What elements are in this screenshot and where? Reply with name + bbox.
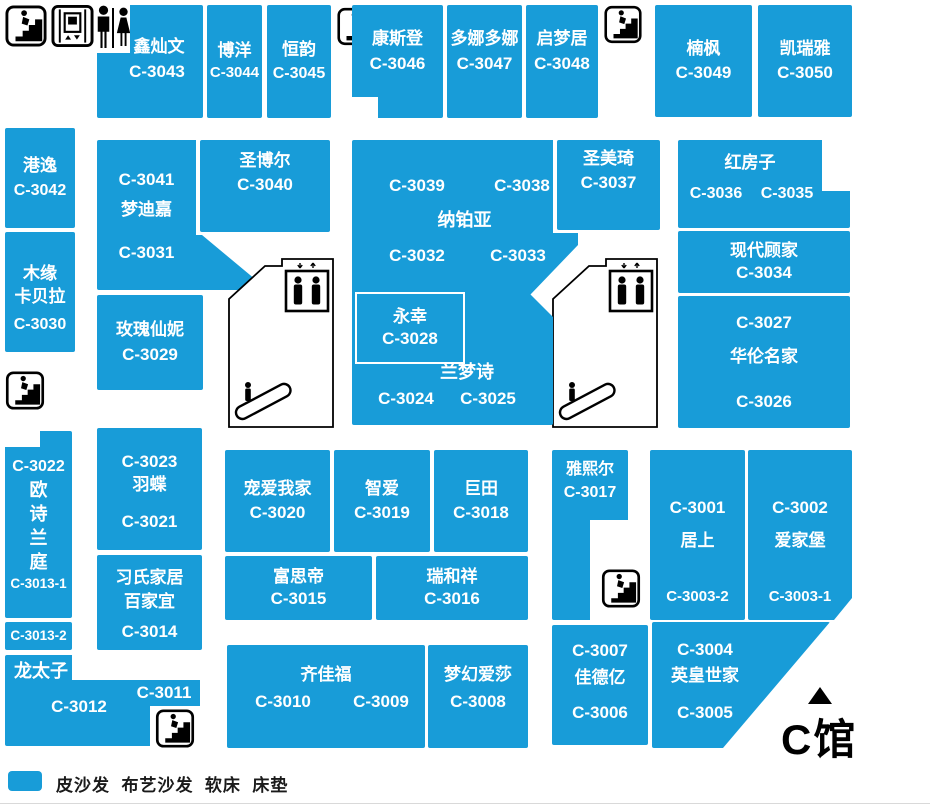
store-code: C-3024 <box>360 389 452 409</box>
store-name: 恒韵 <box>282 40 316 60</box>
stairs-icon <box>604 4 642 45</box>
store-code: C-3044 <box>210 64 259 82</box>
store-code: C-3006 <box>552 703 648 723</box>
store-block-c3027-c3026: C-3027 华伦名家 C-3026 <box>678 296 850 428</box>
store-code: C-3035 <box>755 184 819 203</box>
store-block-c3007-c3006: C-3007 佳德亿 C-3006 <box>552 625 648 745</box>
store-name: 兰 <box>30 526 48 550</box>
store-name: 欧 <box>30 478 48 502</box>
store-block-c3023-c3021: C-3023 羽蝶 C-3021 <box>97 428 202 550</box>
store-name: 兰梦诗 <box>412 362 522 384</box>
store-block-c3008: 梦幻爱莎 C-3008 <box>428 645 528 748</box>
stairs-icon <box>5 371 45 410</box>
store-block-c3016: 瑞和祥 C-3016 <box>376 556 528 620</box>
store-block-qijiafu: 齐佳福 C-3010 C-3009 <box>227 645 425 748</box>
store-block-c3045: 恒韵 C-3045 <box>267 5 331 118</box>
store-block-c3015: 富思帝 C-3015 <box>225 556 372 620</box>
store-name: 华伦名家 <box>678 347 850 367</box>
store-code: C-3045 <box>273 64 325 83</box>
stairs-icon <box>5 4 47 48</box>
store-block-c3047: 多娜多娜 C-3047 <box>447 5 522 118</box>
store-block-c3046: 康斯登 C-3046 <box>352 5 443 118</box>
store-name: 居上 <box>650 531 745 551</box>
elevator-cab-icon <box>610 263 652 311</box>
store-name: 木缘 <box>23 264 57 284</box>
store-name: 英皇世家 <box>656 666 754 686</box>
store-code: C-3047 <box>457 54 513 74</box>
elevator-cab-icon <box>286 263 328 311</box>
store-code: C-3050 <box>777 63 833 83</box>
store-code: C-3049 <box>676 63 732 83</box>
store-code: C-3001 <box>650 498 745 518</box>
store-block-c3013-2: C-3013-2 <box>5 622 72 650</box>
store-name: 习氏家居 <box>97 568 202 588</box>
store-block-c3019: 智爱 C-3019 <box>334 450 430 552</box>
stairs-icon <box>601 569 641 608</box>
store-code: C-3022 <box>12 456 64 478</box>
store-code: C-3040 <box>237 175 293 195</box>
store-code: C-3043 <box>111 62 203 82</box>
store-name: 诗 <box>30 502 48 526</box>
store-name: 圣美琦 <box>583 149 634 169</box>
legend-categories: 皮沙发 布艺沙发 软床 床垫 <box>56 771 288 796</box>
store-name: 纳铂亚 <box>407 210 522 232</box>
store-name: 佳德亿 <box>552 668 648 688</box>
store-code: C-3012 <box>43 697 115 717</box>
store-name: 智爱 <box>365 479 399 499</box>
store-name: 卡贝拉 <box>15 287 66 307</box>
store-code: C-3003-1 <box>748 588 852 606</box>
store-name: 雅熙尔 <box>552 460 628 479</box>
store-code: C-3048 <box>534 54 590 74</box>
stairs-icon <box>155 709 195 748</box>
store-name: 永幸 <box>393 307 427 327</box>
store-name: 康斯登 <box>372 29 423 49</box>
store-name: 圣博尔 <box>240 151 291 171</box>
store-block-redhouse: 红房子 C-3036 C-3035 <box>678 140 850 228</box>
bottom-divider <box>0 803 930 804</box>
floor-plan: 鑫灿文 C-3043 博洋 C-3044 恒韵 C-3045 康斯登 C-304… <box>0 0 930 808</box>
store-name: 庭 <box>30 550 48 574</box>
store-code: C-3027 <box>678 313 850 333</box>
store-block-c3022-c3013-1: C-3022 欧 诗 兰 庭 C-3013-1 <box>5 431 72 618</box>
store-code: C-3018 <box>453 503 509 523</box>
store-block-c3040: 圣博尔 C-3040 <box>200 140 330 232</box>
store-name: 百家宜 <box>97 592 202 612</box>
store-block-c3037: 圣美琦 C-3037 <box>557 140 660 230</box>
store-code: C-3008 <box>428 692 528 712</box>
escalator-enclosure <box>225 255 337 431</box>
store-name: 梦迪嘉 <box>97 200 196 220</box>
store-code: C-3020 <box>250 503 306 523</box>
store-code: C-3046 <box>370 54 426 74</box>
store-block-c3050: 凯瑞雅 C-3050 <box>758 5 852 117</box>
store-code: C-3042 <box>14 181 66 200</box>
store-name: 博洋 <box>218 41 252 61</box>
store-code: C-3032 <box>372 246 462 266</box>
store-code: C-3011 <box>129 683 199 703</box>
store-code: C-3038 <box>477 176 567 196</box>
store-code: C-3014 <box>97 622 202 642</box>
store-code: C-3030 <box>14 315 66 334</box>
store-block-c3042: 港逸 C-3042 <box>5 128 75 228</box>
store-name: 羽蝶 <box>97 475 202 495</box>
store-code: C-3031 <box>97 243 196 263</box>
store-code: C-3026 <box>678 392 850 412</box>
store-code: C-3025 <box>450 389 526 409</box>
store-code: C-3037 <box>581 173 637 193</box>
store-block-c3044: 博洋 C-3044 <box>207 5 262 118</box>
store-block-c3001: C-3001 居上 C-3003-2 <box>650 450 745 620</box>
store-name: 多娜多娜 <box>451 29 519 49</box>
store-code: C-3015 <box>271 589 327 609</box>
store-block-c3029: 玫瑰仙妮 C-3029 <box>97 295 203 390</box>
store-code: C-3016 <box>424 589 480 609</box>
store-name: 现代顾家 <box>730 241 798 261</box>
store-block-c3049: 楠枫 C-3049 <box>655 5 752 117</box>
store-block-c3002: C-3002 爱家堡 C-3003-1 <box>748 450 852 620</box>
hall-label: C馆 <box>781 706 857 767</box>
north-triangle-icon <box>808 687 832 704</box>
store-code: C-3010 <box>241 692 325 712</box>
store-block-c3028: 永幸 C-3028 <box>355 292 465 364</box>
store-name: 富思帝 <box>273 567 324 587</box>
store-code: C-3039 <box>372 176 462 196</box>
store-code: C-3013-2 <box>10 628 66 644</box>
store-block-c3034: 现代顾家 C-3034 <box>678 231 850 293</box>
store-code: C-3007 <box>552 641 648 661</box>
store-block-c3048: 启梦居 C-3048 <box>526 5 598 118</box>
store-code: C-3013-1 <box>10 575 66 593</box>
store-name: 梦幻爱莎 <box>428 665 528 685</box>
store-name: 宠爱我家 <box>244 479 312 499</box>
mens-restroom-icon <box>95 5 112 49</box>
store-block-c3030: 木缘 卡贝拉 C-3030 <box>5 232 75 352</box>
store-block-nabaiya: C-3039 C-3038 纳铂亚 C-3032 C-3033 <box>352 140 578 295</box>
store-name: 红房子 <box>678 153 822 173</box>
store-code: C-3017 <box>552 483 628 502</box>
store-name: 港逸 <box>23 156 57 176</box>
store-block-c3014: 习氏家居 百家宜 C-3014 <box>97 555 202 650</box>
store-name: 启梦居 <box>537 29 588 49</box>
store-block-c3020: 宠爱我家 C-3020 <box>225 450 330 552</box>
store-name: 瑞和祥 <box>427 567 478 587</box>
store-code: C-3019 <box>354 503 410 523</box>
store-code: C-3034 <box>736 263 792 283</box>
store-code: C-3028 <box>382 329 438 349</box>
store-name: 巨田 <box>464 479 498 499</box>
store-code: C-3003-2 <box>650 588 745 606</box>
elevator-icon <box>51 4 94 48</box>
store-code: C-3004 <box>660 640 750 660</box>
store-code: C-3041 <box>97 170 196 190</box>
store-name: 龙太子 <box>7 661 75 683</box>
store-name: 凯瑞雅 <box>780 39 831 59</box>
store-name: 玫瑰仙妮 <box>116 320 184 340</box>
store-block-c3018: 巨田 C-3018 <box>434 450 528 552</box>
store-code: C-3029 <box>122 345 178 365</box>
legend-swatch <box>8 771 42 791</box>
store-name: 楠枫 <box>687 39 721 59</box>
store-code: C-3021 <box>97 512 202 532</box>
store-code: C-3009 <box>339 692 423 712</box>
store-name: 爱家堡 <box>748 531 852 551</box>
store-name: 齐佳福 <box>227 665 425 685</box>
escalator-enclosure <box>549 255 661 431</box>
store-code: C-3033 <box>477 246 559 266</box>
store-code: C-3005 <box>660 703 750 723</box>
store-code: C-3023 <box>97 452 202 472</box>
store-code: C-3036 <box>682 184 750 203</box>
store-code: C-3002 <box>748 498 852 518</box>
